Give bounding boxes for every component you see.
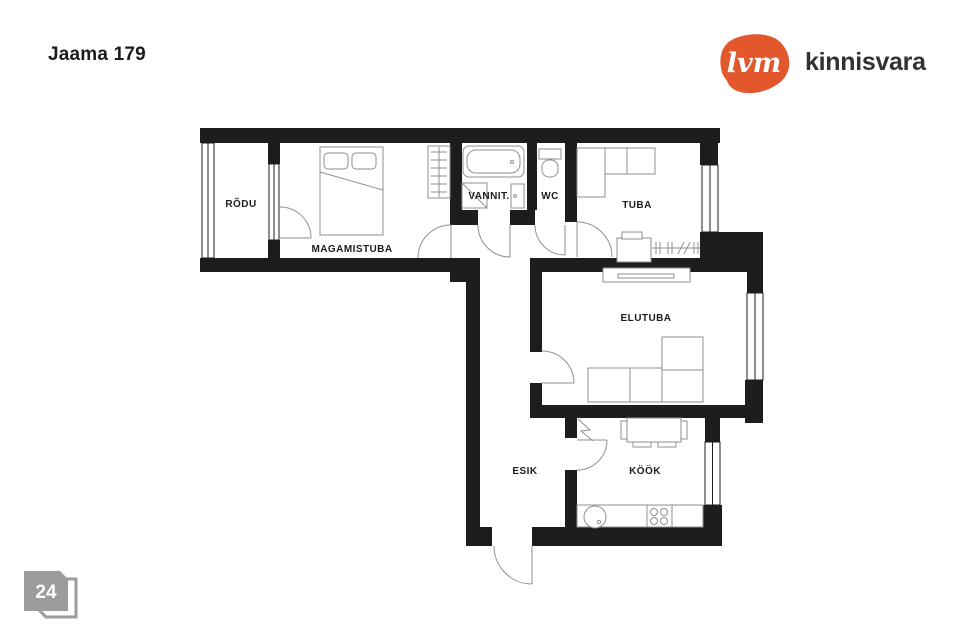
page-number-badge: 24	[20, 567, 100, 631]
kitchen-sink	[584, 506, 606, 528]
door-balcony	[280, 207, 311, 238]
room-label-esik: ESIK	[512, 466, 537, 477]
dining-table	[621, 418, 687, 447]
room-labels: RÕDU MAGAMISTUBA VANNIT. WC TUBA ELUTUBA…	[225, 191, 671, 477]
balcony-glazing-window	[202, 143, 214, 258]
kook-window	[705, 442, 720, 505]
radiator-hatch	[652, 242, 700, 254]
tv-bench	[603, 268, 690, 282]
page-number: 24	[35, 582, 57, 603]
brochure-page: Jaama 179 lvm kinnisvara	[0, 0, 960, 640]
toilet	[539, 149, 561, 177]
room-label-kook: KÖÖK	[629, 464, 661, 477]
room-label-wc: WC	[541, 191, 559, 202]
balcony-door-window	[269, 164, 279, 240]
door-tuba	[577, 222, 612, 257]
tuba-window	[702, 165, 718, 232]
door-vannituba	[478, 225, 510, 257]
elutuba-corner-sofa	[588, 337, 703, 402]
door-magamistuba	[418, 225, 451, 258]
room-label-elutuba: ELUTUBA	[621, 313, 672, 324]
bed	[320, 147, 383, 235]
floor-plan: RÕDU MAGAMISTUBA VANNIT. WC TUBA ELUTUBA…	[0, 0, 960, 640]
door-elutuba	[542, 351, 574, 383]
bathroom-sink	[511, 184, 524, 208]
room-label-tuba: TUBA	[622, 200, 652, 211]
room-label-vannituba: VANNIT.	[468, 191, 509, 202]
elutuba-window	[747, 293, 763, 380]
desk	[617, 232, 651, 262]
stove	[647, 505, 672, 527]
tuba-corner-sofa	[577, 148, 655, 197]
bathtub	[463, 146, 524, 177]
room-label-rodu: RÕDU	[225, 197, 256, 210]
door-kook	[577, 419, 607, 470]
room-label-magamistuba: MAGAMISTUBA	[311, 244, 392, 255]
wardrobe	[428, 146, 450, 198]
door-entrance	[494, 546, 532, 584]
door-wc	[535, 225, 565, 255]
